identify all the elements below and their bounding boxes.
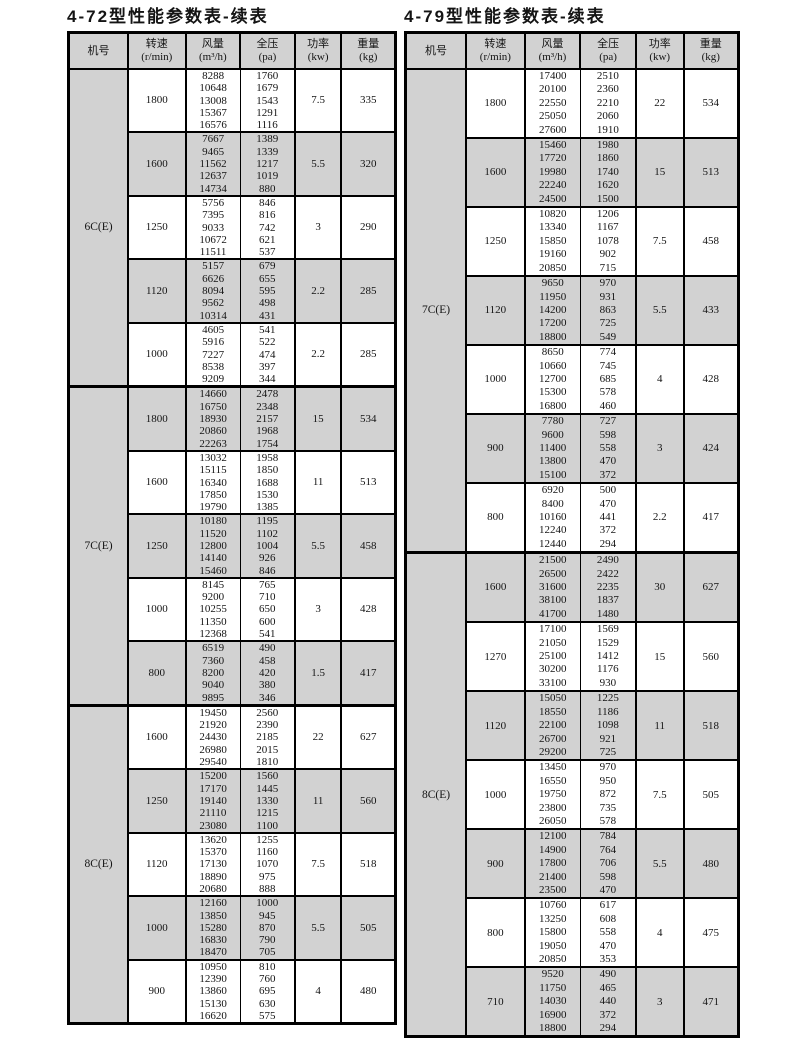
flow-cell-value: 10180 — [187, 515, 240, 527]
flow-cell: 1945021920244302698029540 — [186, 705, 241, 769]
pressure-cell: 125511601070975888 — [240, 833, 295, 896]
flow-cell: 1740020100225502505027600 — [525, 69, 581, 138]
pressure-cell-value: 397 — [241, 361, 294, 373]
weight-cell: 424 — [684, 414, 739, 483]
flow-cell-value: 31600 — [526, 581, 580, 594]
speed-group-row: 8C(E)16001945021920244302698029540256023… — [69, 705, 396, 769]
flow-cell: 5756739590331067211511 — [186, 196, 241, 259]
power-cell: 4 — [636, 898, 684, 967]
pressure-cell-value: 2015 — [241, 744, 294, 756]
pressure-cell-value: 1160 — [241, 846, 294, 858]
flow-cell-value: 12440 — [526, 538, 580, 551]
power-cell: 7.5 — [636, 760, 684, 829]
performance-table-4-72: 机号转速(r/min)风量(m³/h)全压(pa)功率(kw)重量(kg)6C(… — [67, 31, 397, 1025]
pressure-cell-value: 465 — [581, 982, 635, 995]
pressure-cell-value: 888 — [241, 883, 294, 895]
pressure-cell-value: 872 — [581, 788, 635, 801]
pressure-cell-value: 541 — [241, 628, 294, 640]
flow-cell-value: 16340 — [187, 477, 240, 489]
pressure-cell-value: 630 — [241, 998, 294, 1010]
pressure-cell-value: 1225 — [581, 692, 635, 705]
pressure-cell-value: 2360 — [581, 83, 635, 96]
flow-cell-value: 41700 — [526, 608, 580, 621]
header-cell-weight: 重量(kg) — [341, 33, 395, 70]
flow-cell: 1076013250158001905020850 — [525, 898, 581, 967]
pressure-cell-value: 558 — [581, 442, 635, 455]
pressure-cell-value: 608 — [581, 913, 635, 926]
flow-cell-value: 5916 — [187, 336, 240, 348]
pressure-cell-value: 2060 — [581, 110, 635, 123]
pressure-cell: 120611671078902715 — [580, 207, 636, 276]
flow-cell-value: 17170 — [187, 783, 240, 795]
pressure-cell-value: 695 — [241, 985, 294, 997]
power-cell: 7.5 — [295, 833, 342, 896]
flow-cell-value: 13850 — [187, 910, 240, 922]
speed-cell: 800 — [128, 641, 186, 705]
speed-cell: 900 — [128, 960, 186, 1024]
flow-cell-value: 12800 — [187, 540, 240, 552]
pressure-cell-value: 441 — [581, 511, 635, 524]
flow-cell: 46055916722785389209 — [186, 323, 241, 387]
flow-cell-value: 21500 — [526, 554, 580, 567]
header-label: 转速 — [129, 38, 185, 51]
pressure-cell-value: 1543 — [241, 95, 294, 107]
pressure-cell-value: 2185 — [241, 731, 294, 743]
pressure-cell-value: 970 — [581, 277, 635, 290]
flow-cell-value: 22240 — [526, 179, 580, 192]
pressure-cell-value: 1980 — [581, 139, 635, 152]
speed-cell: 1120 — [128, 833, 186, 896]
weight-cell: 513 — [341, 451, 395, 514]
flow-cell-value: 29200 — [526, 746, 580, 759]
power-cell: 5.5 — [636, 829, 684, 898]
pressure-cell-value: 1412 — [581, 650, 635, 663]
flow-cell-value: 12100 — [526, 830, 580, 843]
weight-cell: 471 — [684, 967, 739, 1037]
pressure-cell-value: 1560 — [241, 770, 294, 782]
power-cell: 30 — [636, 553, 684, 623]
pressure-cell-value: 537 — [241, 246, 294, 258]
flow-cell-value: 7227 — [187, 349, 240, 361]
flow-cell-value: 15200 — [187, 770, 240, 782]
pressure-cell-value: 1176 — [581, 663, 635, 676]
flow-cell-value: 20850 — [526, 953, 580, 966]
flow-cell-value: 16800 — [526, 400, 580, 413]
power-cell: 15 — [295, 387, 342, 451]
speed-cell: 1000 — [128, 578, 186, 641]
flow-cell: 1018011520128001414015460 — [186, 514, 241, 577]
power-cell: 2.2 — [636, 483, 684, 553]
pressure-cell-value: 1255 — [241, 834, 294, 846]
pressure-cell-value: 1850 — [241, 464, 294, 476]
pressure-cell: 490465440372294 — [580, 967, 636, 1037]
header-row: 机号转速(r/min)风量(m³/h)全压(pa)功率(kw)重量(kg) — [69, 33, 396, 70]
flow-cell-value: 13620 — [187, 834, 240, 846]
pressure-cell: 1000945870790705 — [240, 896, 295, 959]
flow-cell-value: 6626 — [187, 273, 240, 285]
pressure-cell-value: 575 — [241, 1010, 294, 1022]
weight-cell: 285 — [341, 259, 395, 322]
flow-cell-value: 13008 — [187, 95, 240, 107]
pressure-cell-value: 294 — [581, 538, 635, 551]
flow-cell-value: 14030 — [526, 995, 580, 1008]
pressure-cell-value: 595 — [241, 285, 294, 297]
pressure-cell-value: 1679 — [241, 82, 294, 94]
pressure-cell-value: 460 — [581, 400, 635, 413]
weight-cell: 428 — [684, 345, 739, 414]
power-cell: 22 — [295, 705, 342, 769]
flow-cell-value: 30200 — [526, 663, 580, 676]
flow-cell-value: 7780 — [526, 415, 580, 428]
weight-cell: 290 — [341, 196, 395, 259]
power-cell: 11 — [636, 691, 684, 760]
speed-cell: 900 — [466, 414, 525, 483]
pressure-cell-value: 945 — [241, 910, 294, 922]
pressure-cell-value: 617 — [581, 899, 635, 912]
pressure-cell-value: 816 — [241, 209, 294, 221]
flow-cell-value: 18890 — [187, 871, 240, 883]
pressure-cell-value: 931 — [581, 291, 635, 304]
flow-cell-value: 8650 — [526, 346, 580, 359]
speed-cell: 710 — [466, 967, 525, 1037]
header-unit: (kw) — [296, 51, 341, 64]
flow-cell-value: 11950 — [526, 291, 580, 304]
flow-cell-value: 12700 — [526, 373, 580, 386]
flow-cell-value: 10255 — [187, 603, 240, 615]
pressure-cell: 617608558470353 — [580, 898, 636, 967]
model-cell: 7C(E) — [406, 69, 467, 553]
flow-cell-value: 15050 — [526, 692, 580, 705]
weight-cell: 505 — [684, 760, 739, 829]
flow-cell-value: 16900 — [526, 1009, 580, 1022]
pressure-cell: 25102360221020601910 — [580, 69, 636, 138]
pressure-cell-value: 541 — [241, 324, 294, 336]
header-row: 机号转速(r/min)风量(m³/h)全压(pa)功率(kw)重量(kg) — [406, 33, 739, 70]
header-cell-weight: 重量(kg) — [684, 33, 739, 70]
flow-cell-value: 7667 — [187, 133, 240, 145]
pressure-cell-value: 784 — [581, 830, 635, 843]
flow-cell-value: 11750 — [526, 982, 580, 995]
flow-cell-value: 10672 — [187, 234, 240, 246]
header-unit: (pa) — [581, 51, 635, 64]
header-label: 全压 — [241, 38, 294, 51]
header-unit: (r/min) — [129, 51, 185, 64]
pressure-cell-value: 863 — [581, 304, 635, 317]
pressure-cell-value: 679 — [241, 260, 294, 272]
pressure-cell-value: 774 — [581, 346, 635, 359]
flow-cell-value: 18800 — [526, 331, 580, 344]
weight-cell: 335 — [341, 69, 395, 132]
pressure-cell-value: 1910 — [581, 124, 635, 137]
pressure-cell-value: 950 — [581, 775, 635, 788]
pressure-cell-value: 2490 — [581, 554, 635, 567]
pressure-cell-value: 970 — [581, 761, 635, 774]
speed-cell: 1270 — [466, 622, 525, 691]
pressure-cell-value: 810 — [241, 961, 294, 973]
speed-cell: 1250 — [466, 207, 525, 276]
power-cell: 11 — [295, 769, 342, 832]
speed-group-row: 7C(E)18001466016750189302086022263247823… — [69, 387, 396, 451]
header-unit: (kw) — [637, 51, 683, 64]
weight-cell: 320 — [341, 132, 395, 195]
pressure-cell-value: 498 — [241, 297, 294, 309]
flow-cell: 865010660127001530016800 — [525, 345, 581, 414]
speed-cell: 1250 — [128, 514, 186, 577]
flow-cell: 828810648130081536716576 — [186, 69, 241, 132]
pressure-cell-value: 1968 — [241, 425, 294, 437]
flow-cell-value: 9200 — [187, 591, 240, 603]
flow-cell-value: 10314 — [187, 310, 240, 322]
weight-cell: 433 — [684, 276, 739, 345]
flow-cell-value: 17130 — [187, 858, 240, 870]
pressure-cell-value: 1116 — [241, 119, 294, 131]
speed-group-row: 8C(E)16002150026500316003810041700249024… — [406, 553, 739, 623]
flow-cell-value: 19750 — [526, 788, 580, 801]
power-cell: 11 — [295, 451, 342, 514]
flow-cell-value: 29540 — [187, 756, 240, 768]
flow-cell-value: 14200 — [526, 304, 580, 317]
pressure-cell-value: 1688 — [241, 477, 294, 489]
weight-cell: 428 — [341, 578, 395, 641]
pressure-cell-value: 470 — [581, 455, 635, 468]
flow-cell-value: 16830 — [187, 934, 240, 946]
flow-cell-value: 9562 — [187, 297, 240, 309]
speed-cell: 1120 — [466, 691, 525, 760]
pressure-cell-value: 1385 — [241, 501, 294, 513]
pressure-cell: 17601679154312911116 — [240, 69, 295, 132]
model-cell: 7C(E) — [69, 387, 129, 705]
pressure-cell: 490458420380346 — [240, 641, 295, 705]
speed-cell: 1000 — [128, 323, 186, 387]
pressure-cell-value: 470 — [581, 498, 635, 511]
pressure-cell-value: 440 — [581, 995, 635, 1008]
pressure-cell: 774745685578460 — [580, 345, 636, 414]
flow-cell-value: 22263 — [187, 438, 240, 450]
header-label: 功率 — [296, 38, 341, 51]
flow-cell-value: 13860 — [187, 985, 240, 997]
header-cell-speed: 转速(r/min) — [466, 33, 525, 70]
pressure-cell-value: 1760 — [241, 70, 294, 82]
flow-cell-value: 15100 — [526, 469, 580, 482]
pressure-cell-value: 1445 — [241, 783, 294, 795]
flow-cell-value: 20850 — [526, 262, 580, 275]
pressure-cell: 970950872735578 — [580, 760, 636, 829]
power-cell: 15 — [636, 622, 684, 691]
flow-cell-value: 12240 — [526, 524, 580, 537]
pressure-cell-value: 706 — [581, 857, 635, 870]
speed-cell: 1250 — [128, 196, 186, 259]
flow-cell: 1466016750189302086022263 — [186, 387, 241, 451]
flow-cell-value: 14140 — [187, 552, 240, 564]
flow-cell-value: 7395 — [187, 209, 240, 221]
pressure-cell-value: 2390 — [241, 719, 294, 731]
flow-cell-value: 17200 — [526, 317, 580, 330]
speed-cell: 1600 — [128, 705, 186, 769]
header-cell-power: 功率(kw) — [295, 33, 342, 70]
pressure-cell-value: 880 — [241, 183, 294, 195]
pressure-cell: 846816742621537 — [240, 196, 295, 259]
pressure-cell-value: 1339 — [241, 146, 294, 158]
flow-cell: 2150026500316003810041700 — [525, 553, 581, 623]
pressure-cell: 727598558470372 — [580, 414, 636, 483]
flow-cell-value: 8145 — [187, 579, 240, 591]
weight-cell: 560 — [341, 769, 395, 832]
pressure-cell-value: 522 — [241, 336, 294, 348]
pressure-cell: 19801860174016201500 — [580, 138, 636, 207]
pressure-cell-value: 346 — [241, 692, 294, 704]
pressure-cell-value: 1530 — [241, 489, 294, 501]
pressure-cell: 122511861098921725 — [580, 691, 636, 760]
power-cell: 3 — [295, 578, 342, 641]
flow-cell-value: 16620 — [187, 1010, 240, 1022]
pressure-cell-value: 294 — [581, 1022, 635, 1035]
flow-cell: 515766268094956210314 — [186, 259, 241, 322]
pressure-cell-value: 846 — [241, 197, 294, 209]
weight-cell: 417 — [684, 483, 739, 553]
pressure-cell-value: 735 — [581, 802, 635, 815]
pressure-cell-value: 372 — [581, 524, 635, 537]
speed-cell: 1600 — [466, 553, 525, 623]
flow-cell: 952011750140301690018800 — [525, 967, 581, 1037]
speed-cell: 800 — [466, 898, 525, 967]
flow-cell: 1216013850152801683018470 — [186, 896, 241, 959]
pressure-cell-value: 490 — [581, 968, 635, 981]
speed-cell: 800 — [466, 483, 525, 553]
flow-cell-value: 13800 — [526, 455, 580, 468]
pressure-cell-value: 921 — [581, 733, 635, 746]
pressure-cell-value: 705 — [241, 946, 294, 958]
pressure-cell-value: 2560 — [241, 707, 294, 719]
pressure-cell-value: 1837 — [581, 594, 635, 607]
flow-cell-value: 18800 — [526, 1022, 580, 1035]
pressure-cell-value: 975 — [241, 871, 294, 883]
flow-cell-value: 21050 — [526, 637, 580, 650]
pressure-cell: 1569152914121176930 — [580, 622, 636, 691]
power-cell: 5.5 — [636, 276, 684, 345]
flow-cell-value: 23800 — [526, 802, 580, 815]
header-label: 风量 — [526, 38, 580, 51]
header-unit: (kg) — [685, 51, 737, 64]
pressure-cell-value: 1740 — [581, 166, 635, 179]
flow-cell-value: 10660 — [526, 360, 580, 373]
flow-cell-value: 6519 — [187, 642, 240, 654]
flow-cell-value: 11520 — [187, 528, 240, 540]
table-4-72-title: 4-72型性能参数表-续表 — [67, 6, 397, 31]
flow-cell-value: 4605 — [187, 324, 240, 336]
flow-cell-value: 6920 — [526, 484, 580, 497]
pressure-cell: 784764706598470 — [580, 829, 636, 898]
power-cell: 2.2 — [295, 323, 342, 387]
pressure-cell-value: 380 — [241, 679, 294, 691]
pressure-cell-value: 474 — [241, 349, 294, 361]
pressure-cell-value: 621 — [241, 234, 294, 246]
flow-cell-value: 16750 — [187, 401, 240, 413]
pressure-cell-value: 1070 — [241, 858, 294, 870]
flow-cell: 76679465115621263714734 — [186, 132, 241, 195]
model-cell: 6C(E) — [69, 69, 129, 387]
scanned-page: { "colors": { "shaded": "#d2d2d2", "bord… — [0, 0, 800, 1020]
header-label: 重量 — [342, 38, 394, 51]
flow-cell-value: 10950 — [187, 961, 240, 973]
pressure-cell-value: 372 — [581, 1009, 635, 1022]
pressure-cell-value: 431 — [241, 310, 294, 322]
flow-cell: 1210014900178002140023500 — [525, 829, 581, 898]
pressure-cell-value: 725 — [581, 746, 635, 759]
pressure-cell-value: 2510 — [581, 70, 635, 83]
pressure-cell-value: 930 — [581, 677, 635, 690]
power-cell: 15 — [636, 138, 684, 207]
pressure-cell-value: 725 — [581, 317, 635, 330]
power-cell: 7.5 — [295, 69, 342, 132]
table-4-79-title: 4-79型性能参数表-续表 — [404, 6, 740, 31]
pressure-cell-value: 1330 — [241, 795, 294, 807]
power-cell: 7.5 — [636, 207, 684, 276]
pressure-cell-value: 2157 — [241, 413, 294, 425]
flow-cell-value: 18470 — [187, 946, 240, 958]
pressure-cell: 19581850168815301385 — [240, 451, 295, 514]
pressure-cell-value: 1100 — [241, 820, 294, 832]
flow-cell-value: 15280 — [187, 922, 240, 934]
weight-cell: 480 — [684, 829, 739, 898]
pressure-cell-value: 1389 — [241, 133, 294, 145]
pressure-cell: 15601445133012151100 — [240, 769, 295, 832]
flow-cell: 1345016550197502380026050 — [525, 760, 581, 829]
pressure-cell-value: 1754 — [241, 438, 294, 450]
header-label: 机号 — [70, 45, 127, 58]
flow-cell-value: 5756 — [187, 197, 240, 209]
pressure-cell: 541522474397344 — [240, 323, 295, 387]
pressure-cell-value: 2348 — [241, 401, 294, 413]
speed-cell: 1120 — [128, 259, 186, 322]
flow-cell-value: 26050 — [526, 815, 580, 828]
header-cell-flow: 风量(m³/h) — [525, 33, 581, 70]
flow-cell-value: 23500 — [526, 884, 580, 897]
power-cell: 4 — [295, 960, 342, 1024]
pressure-cell-value: 598 — [581, 871, 635, 884]
speed-cell: 1800 — [128, 387, 186, 451]
pressure-cell: 810760695630575 — [240, 960, 295, 1024]
pressure-cell-value: 846 — [241, 565, 294, 577]
header-unit: (kg) — [342, 51, 394, 64]
flow-cell-value: 18550 — [526, 706, 580, 719]
flow-cell-value: 12160 — [187, 897, 240, 909]
pressure-cell-value: 926 — [241, 552, 294, 564]
pressure-cell-value: 500 — [581, 484, 635, 497]
flow-cell-value: 26700 — [526, 733, 580, 746]
flow-cell-value: 19980 — [526, 166, 580, 179]
weight-cell: 513 — [684, 138, 739, 207]
pressure-cell-value: 549 — [581, 331, 635, 344]
flow-cell-value: 16576 — [187, 119, 240, 131]
pressure-cell-value: 727 — [581, 415, 635, 428]
header-label: 风量 — [187, 38, 240, 51]
speed-cell: 1800 — [128, 69, 186, 132]
power-cell: 5.5 — [295, 514, 342, 577]
weight-cell: 285 — [341, 323, 395, 387]
flow-cell-value: 13340 — [526, 221, 580, 234]
flow-cell-value: 12390 — [187, 973, 240, 985]
flow-cell: 1520017170191402111023080 — [186, 769, 241, 832]
flow-cell-value: 11511 — [187, 246, 240, 258]
weight-cell: 458 — [684, 207, 739, 276]
weight-cell: 534 — [684, 69, 739, 138]
flow-cell-value: 9895 — [187, 692, 240, 704]
flow-cell-value: 12368 — [187, 628, 240, 640]
pressure-cell-value: 790 — [241, 934, 294, 946]
speed-cell: 1600 — [466, 138, 525, 207]
flow-cell-value: 8094 — [187, 285, 240, 297]
pressure-cell-value: 760 — [241, 973, 294, 985]
